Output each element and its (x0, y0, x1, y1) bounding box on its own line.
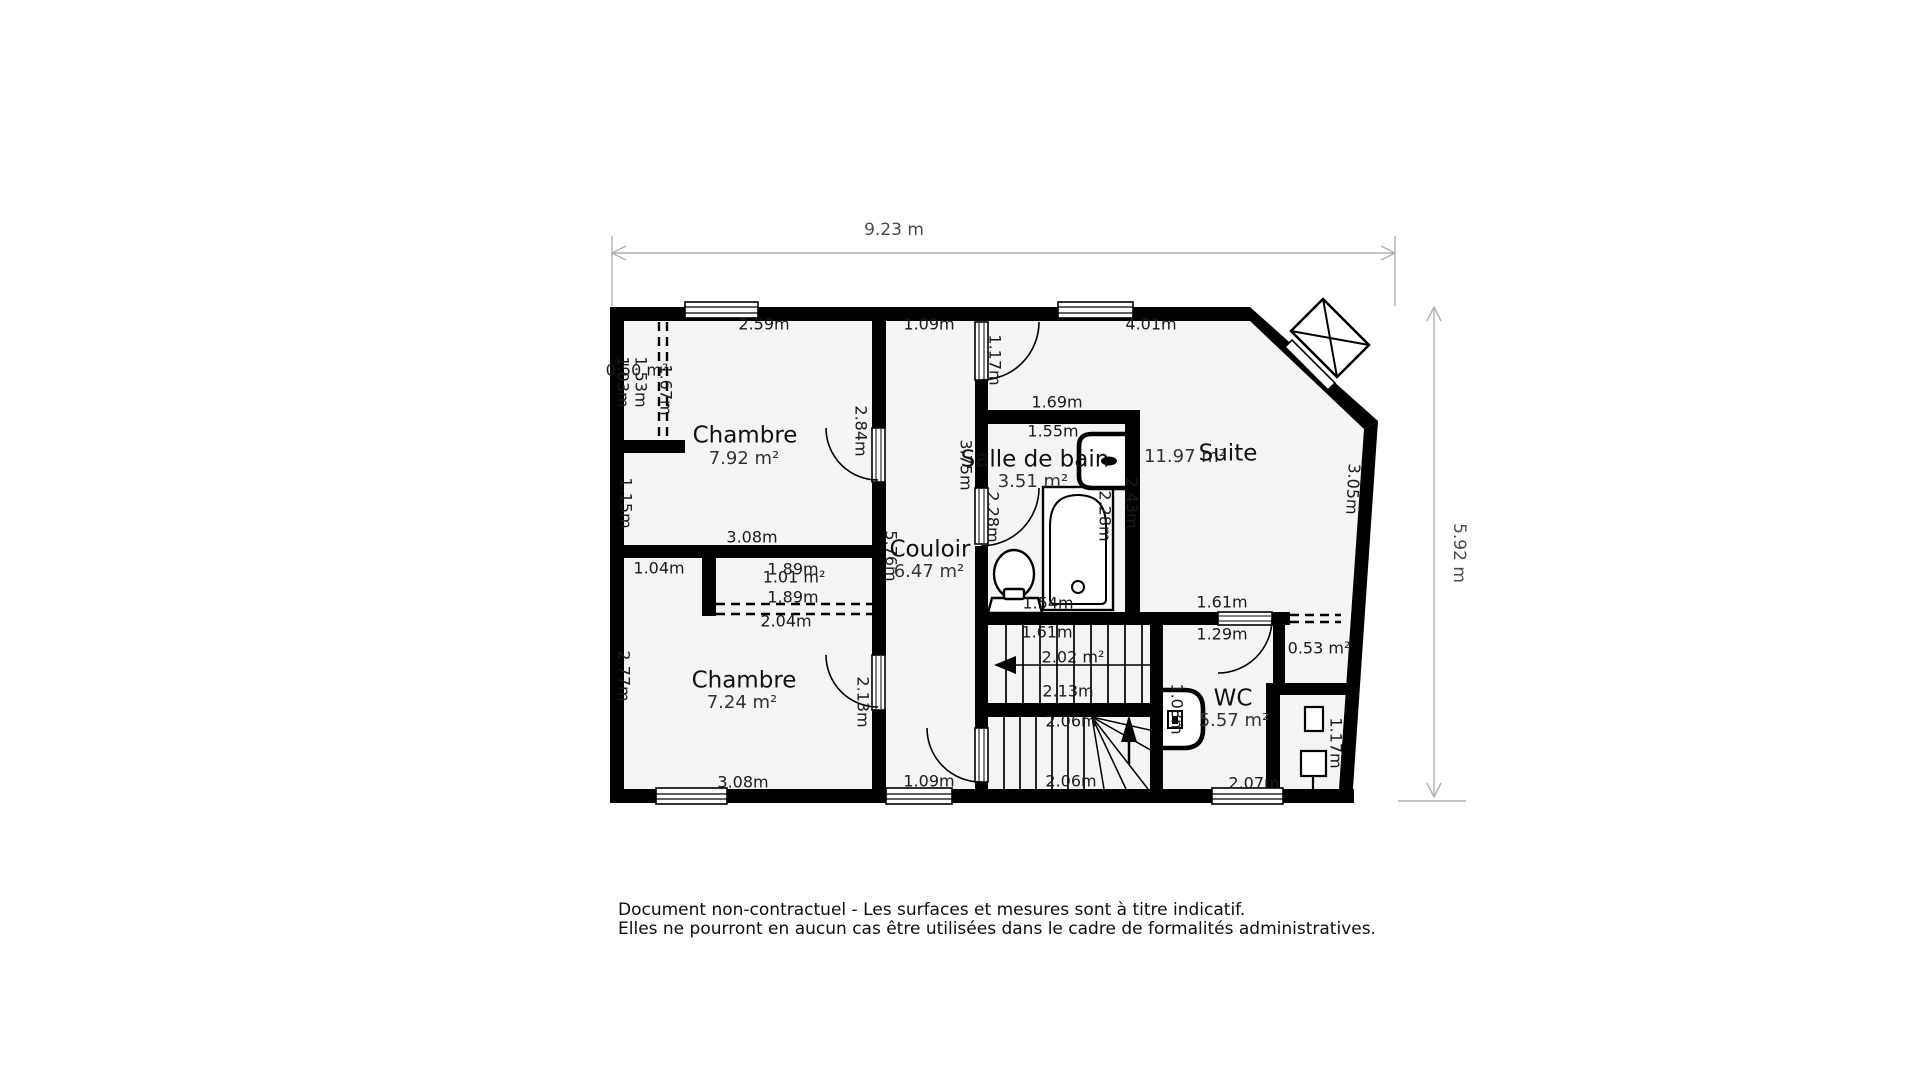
room-area-wc: 5.57 m² (1199, 710, 1270, 731)
radiator-icon (1305, 707, 1323, 731)
measurement-label-16: 4.01m (1125, 315, 1176, 334)
measurement-label-49: 1.08m (1168, 683, 1187, 734)
measurement-label-31: 3.08m (726, 528, 777, 547)
measurement-label-26: 2.28m (984, 491, 1003, 542)
wall-placard-suite-left (1273, 613, 1285, 688)
measurement-label-17: 1.17m (986, 334, 1005, 385)
measurement-label-30: 1.15m (617, 477, 636, 528)
measurement-label-19: 1.55m (1027, 422, 1078, 441)
measurement-label-52: 1.09m (903, 772, 954, 791)
window-suite-top (1058, 302, 1133, 318)
measurement-label-37: 2.04m (760, 612, 811, 631)
measurement-label-33: 1.04m (633, 559, 684, 578)
wall-chambre1-bottom (610, 545, 886, 558)
wall-couloir-right-middle (975, 546, 988, 728)
measurement-label-45: 2.06m (1045, 712, 1096, 731)
room-title-suite: Suite (1199, 441, 1258, 467)
room-title-couloir: Couloir (889, 537, 971, 563)
room-area-chambre-1: 7.92 m² (709, 448, 780, 469)
dimension-line-width (612, 236, 1395, 306)
room-area-salle-de-bain: 3.51 m² (998, 471, 1069, 492)
wall-couloir-left-upper (872, 321, 886, 428)
measurement-label-48: 2.13m (854, 676, 873, 727)
measurement-label-42: 1.61m (1021, 623, 1072, 642)
measurement-label-32: 5.76m (882, 530, 901, 581)
disclaimer: Document non-contractuel - Les surfaces … (618, 901, 1376, 938)
measurement-label-22: 1.53m (632, 356, 651, 407)
measurement-label-35: 1.01 m² (763, 568, 826, 587)
room-area-chambre-2: 7.24 m² (707, 692, 778, 713)
measurement-label-51: 3.08m (717, 773, 768, 792)
measurement-label-38: 1.54m (1022, 594, 1073, 613)
measurement-label-21: 1.03m (614, 356, 633, 407)
measurement-label-25: 3.75m (957, 439, 976, 490)
measurement-label-18: 1.69m (1031, 393, 1082, 412)
measurement-label-15: 1.09m (903, 315, 954, 334)
room-title-salle-de-bain: Salle de bain (961, 447, 1110, 473)
measurement-label-53: 2.07m (1228, 774, 1279, 793)
measurement-label-39: 1.61m (1196, 593, 1247, 612)
measurement-label-29: 3.05m (1342, 463, 1364, 515)
disclaimer-line-1: Document non-contractuel - Les surfaces … (618, 901, 1376, 920)
measurement-label-28: 2.43m (1123, 477, 1142, 528)
measurement-label-40: 1.29m (1196, 625, 1247, 644)
measurement-label-14: 2.59m (738, 315, 789, 334)
measurement-label-24: 2.84m (852, 405, 871, 456)
overall-width-label: 9.23 m (864, 220, 924, 240)
room-title-chambre-2: Chambre (692, 668, 797, 694)
wall-couloir-right-lower (975, 782, 988, 789)
window-chambre2-bottom (656, 788, 727, 804)
room-area-couloir: 6.47 m² (894, 561, 965, 582)
overall-height-label: 5.92 m (1449, 523, 1469, 583)
measurement-label-44: 2.13m (1042, 682, 1093, 701)
disclaimer-line-2: Elles ne pourront en aucun cas être util… (618, 920, 1376, 939)
room-title-chambre-1: Chambre (693, 423, 798, 449)
measurement-label-23: 1.67m (657, 364, 676, 415)
measurement-label-47: 2.77m (615, 650, 634, 701)
wall-closet1-stub (610, 440, 685, 453)
measurement-label-27: 2.28m (1096, 490, 1115, 541)
wall-between-chambres-stub (702, 558, 716, 616)
measurement-label-50: 1.17m (1327, 717, 1346, 768)
room-title-wc: WC (1214, 686, 1253, 712)
measurement-label-46: 2.06m (1045, 772, 1096, 791)
measurement-label-41: 0.53 m² (1288, 639, 1351, 658)
measurement-label-43: 2.02 m² (1042, 648, 1105, 667)
wall-couloir-left-lower (872, 710, 886, 789)
measurement-label-36: 1.89m (767, 588, 818, 607)
